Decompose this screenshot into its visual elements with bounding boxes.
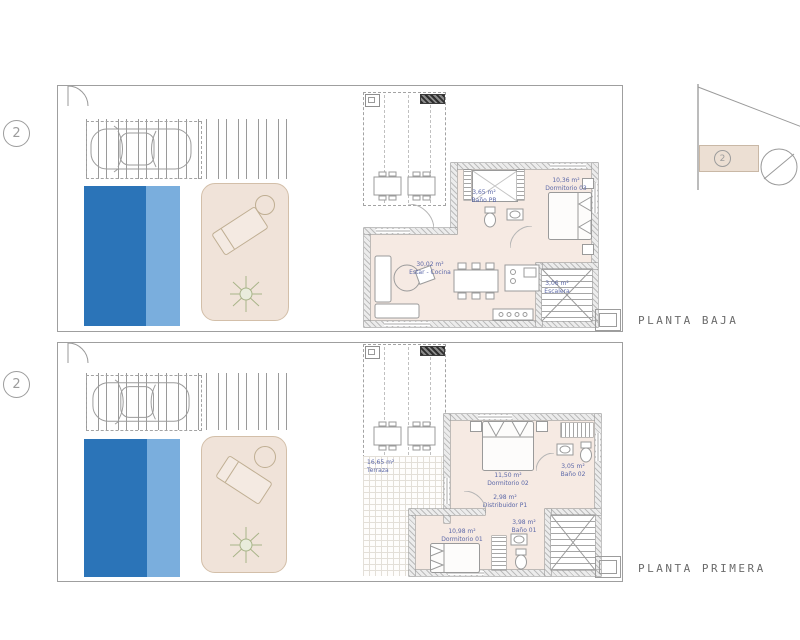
garden-terrace — [201, 436, 287, 573]
room-label-escalera: 3,06 m² Escalera — [542, 280, 572, 295]
outdoor-dining-tables-icon — [370, 421, 438, 451]
room-label-terraza: 16,65 m² Terraza — [364, 459, 407, 474]
room-area: 10,36 m² — [542, 177, 590, 185]
room-area: 30,02 m² — [398, 261, 462, 269]
gate-door-arc-icon — [66, 343, 90, 367]
room-name: Dormitorio 01 — [436, 536, 488, 544]
room-name: Terraza — [367, 467, 407, 475]
room-name: Dormitorio 03 — [542, 185, 590, 193]
room-label-estar-cocina: 30,02 m² Estar - Cocina — [398, 261, 462, 276]
sink-icon — [556, 443, 574, 456]
room-label-dormitorio-02: 11,50 m² Dormitorio 02 — [484, 472, 532, 487]
shower-wall-hatch — [492, 536, 506, 570]
nightstand-icon — [582, 244, 594, 255]
bed-icon — [430, 543, 480, 573]
unit-marker-text: 2 — [12, 377, 20, 392]
room-name: Escalera — [542, 288, 572, 296]
room-label-dormitorio-01: 10,98 m² Dormitorio 01 — [436, 528, 488, 543]
window — [376, 229, 410, 233]
nightstand-icon — [470, 421, 482, 432]
bed-icon — [482, 421, 534, 471]
door-arc-icon — [510, 226, 532, 248]
pool-shallow-area — [147, 439, 180, 577]
key-plan-unit-text: 2 — [720, 154, 726, 164]
sliding-door — [384, 322, 430, 326]
stairs — [551, 515, 595, 570]
covered-porch-outline — [363, 344, 446, 458]
toilet-icon — [513, 548, 529, 570]
hatched-wall-block — [420, 346, 445, 356]
toilet-icon — [578, 441, 594, 463]
utility-box-icon — [365, 346, 380, 359]
car-top-view-icon — [88, 377, 194, 427]
room-area: 16,65 m² — [367, 459, 407, 467]
wall — [364, 228, 370, 327]
toilet-icon — [482, 206, 498, 228]
door-arc-icon — [536, 453, 554, 471]
room-label-bano-01: 3,98 m² Baño 01 — [504, 519, 544, 534]
wall — [451, 163, 457, 234]
room-name: Baño PB — [462, 197, 506, 205]
window — [550, 164, 586, 168]
key-plan-unit-marker: 2 — [714, 150, 731, 167]
plan-title-planta-primera: PLANTA PRIMERA — [638, 562, 766, 575]
round-table-icon — [254, 446, 276, 468]
bed-icon — [548, 192, 592, 240]
room-area: 3,98 m² — [504, 519, 544, 527]
wall — [409, 509, 415, 576]
room-area: 3,05 m² — [552, 463, 594, 471]
hatched-wall-block — [420, 94, 445, 104]
section-corner-symbol — [595, 309, 621, 331]
site-key-plan-lines-icon — [690, 80, 800, 192]
hob-icon — [492, 308, 534, 321]
unit-marker-text: 2 — [12, 126, 20, 141]
outdoor-dining-tables-icon — [370, 171, 438, 201]
key-plan-unit-block: 2 — [699, 145, 759, 172]
sink-icon — [506, 208, 524, 221]
room-name: Baño 02 — [552, 471, 594, 479]
pool-deep-area — [84, 186, 146, 326]
unit-marker-ground-floor: 2 — [3, 120, 30, 147]
door-arc-icon — [464, 491, 486, 513]
wall — [444, 414, 450, 523]
wall — [444, 414, 601, 420]
unit-marker-first-floor: 2 — [3, 371, 30, 398]
room-name: Dormitorio 02 — [484, 480, 532, 488]
floor-plan-sheet: 2 2 2 — [0, 0, 800, 640]
room-label-bano-02: 3,05 m² Baño 02 — [552, 463, 594, 478]
garden-terrace — [201, 183, 289, 321]
room-label-bano-pb: 3,65 m² Baño PB — [462, 189, 506, 204]
pool-deep-area — [84, 439, 147, 577]
room-area: 11,50 m² — [484, 472, 532, 480]
shower-wall-hatch — [517, 170, 524, 200]
car-top-view-icon — [88, 123, 194, 175]
plant-icon — [226, 272, 266, 316]
planta-baja-plan: 3,65 m² Baño PB 10,36 m² Dormitorio 03 — [57, 85, 623, 332]
plan-title-planta-baja: PLANTA BAJA — [638, 314, 738, 327]
section-corner-symbol — [595, 556, 621, 578]
window — [445, 478, 449, 504]
gate-door-arc-icon — [66, 86, 90, 110]
room-name: Baño 01 — [504, 527, 544, 535]
utility-box-icon — [365, 94, 380, 107]
sink-icon — [510, 533, 528, 546]
door-arc-icon — [408, 204, 434, 230]
sun-lounger-icon — [211, 206, 269, 256]
window — [596, 433, 600, 461]
room-area: 3,06 m² — [542, 280, 572, 288]
room-name: Estar - Cocina — [398, 269, 462, 277]
nightstand-icon — [536, 421, 548, 432]
kitchen-unit-icon — [504, 264, 540, 294]
window — [478, 415, 512, 419]
room-label-dormitorio-03: 10,36 m² Dormitorio 03 — [542, 177, 590, 192]
room-area: 3,65 m² — [462, 189, 506, 197]
plant-icon — [226, 523, 266, 567]
room-area: 10,98 m² — [436, 528, 488, 536]
shower-wall-hatch — [561, 423, 593, 437]
pool-shallow-area — [146, 186, 180, 326]
planta-primera-plan: 16,65 m² Terraza 11,50 — [57, 342, 623, 582]
covered-porch-outline — [363, 92, 446, 206]
stairs — [542, 269, 592, 321]
